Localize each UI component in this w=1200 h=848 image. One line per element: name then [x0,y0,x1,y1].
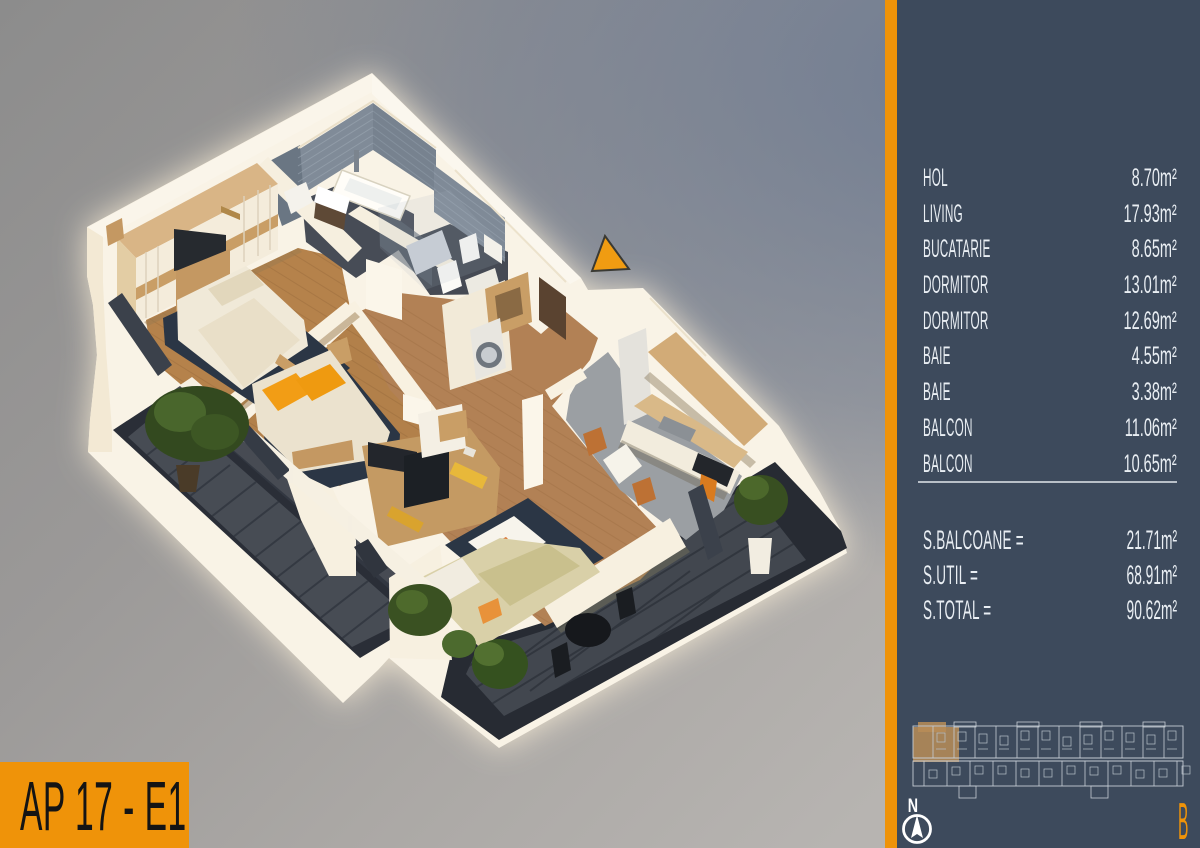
svg-text:N: N [908,795,918,816]
